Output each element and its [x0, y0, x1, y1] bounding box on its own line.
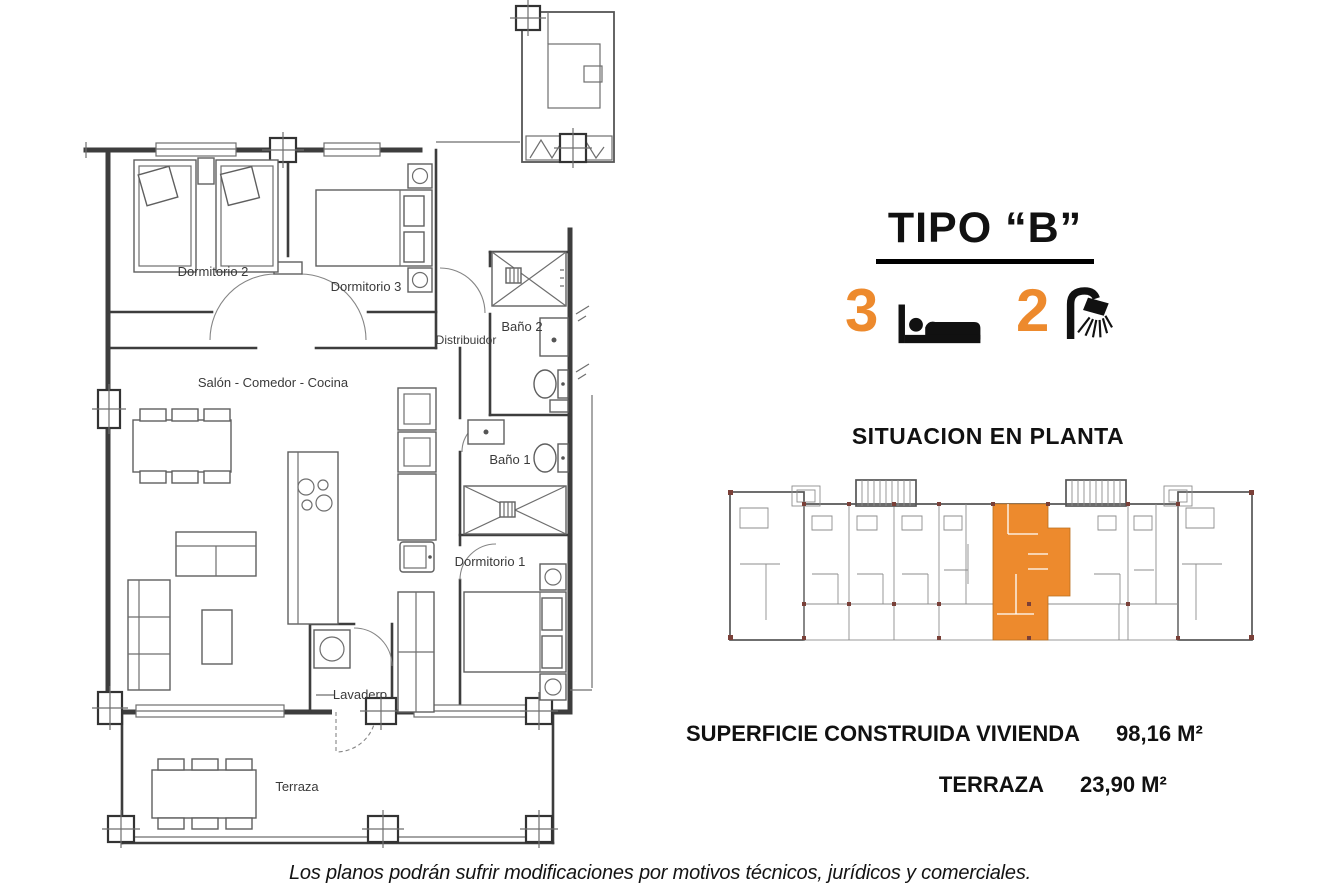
- room-label-dormitorio-3: Dormitorio 3: [331, 279, 402, 294]
- room-label-terraza: Terraza: [275, 779, 319, 794]
- highlighted-unit: [993, 504, 1070, 640]
- type-title-wrap: TIPO “B”: [800, 204, 1170, 264]
- site-plan: [716, 474, 1266, 652]
- site-plan-pillars: [728, 490, 1254, 640]
- bathroom-count: 2: [1016, 281, 1049, 341]
- surface-label-vivienda: SUPERFICIE CONSTRUIDA VIVIENDA: [686, 721, 1080, 747]
- room-label-dormitorio-2: Dormitorio 2: [178, 264, 249, 279]
- page-title: TIPO “B”: [876, 204, 1094, 264]
- room-label-distribuidor: Distribuidor: [436, 333, 497, 347]
- room-label-bano-1: Baño 1: [489, 452, 530, 467]
- shower-icon: [1062, 281, 1114, 339]
- room-label-salon: Salón - Comedor - Cocina: [198, 375, 349, 390]
- surface-value-terraza: 23,90 M²: [1080, 772, 1192, 798]
- situation-title: SITUACION EN PLANTA: [818, 423, 1158, 450]
- surface-label-terraza: TERRAZA: [686, 772, 1044, 798]
- bed-icon: [897, 299, 981, 345]
- surface-row-vivienda: SUPERFICIE CONSTRUIDA VIVIENDA 98,16 M²: [686, 721, 1192, 747]
- floor-plan: Dormitorio 2 Dormitorio 3 Distribuidor B…: [0, 0, 660, 895]
- room-label-bano-2: Baño 2: [501, 319, 542, 334]
- plan-sheet: Dormitorio 2 Dormitorio 3 Distribuidor B…: [0, 0, 1320, 895]
- surface-row-terraza: TERRAZA 23,90 M²: [686, 772, 1192, 798]
- room-label-dormitorio-1: Dormitorio 1: [455, 554, 526, 569]
- bedroom-count: 3: [845, 281, 878, 341]
- disclaimer-text: Los planos podrán sufrir modificaciones …: [0, 862, 1320, 885]
- room-label-lavadero: Lavadero: [333, 687, 387, 702]
- surface-value-vivienda: 98,16 M²: [1116, 721, 1203, 747]
- doors: [210, 262, 496, 666]
- furniture: [128, 158, 568, 829]
